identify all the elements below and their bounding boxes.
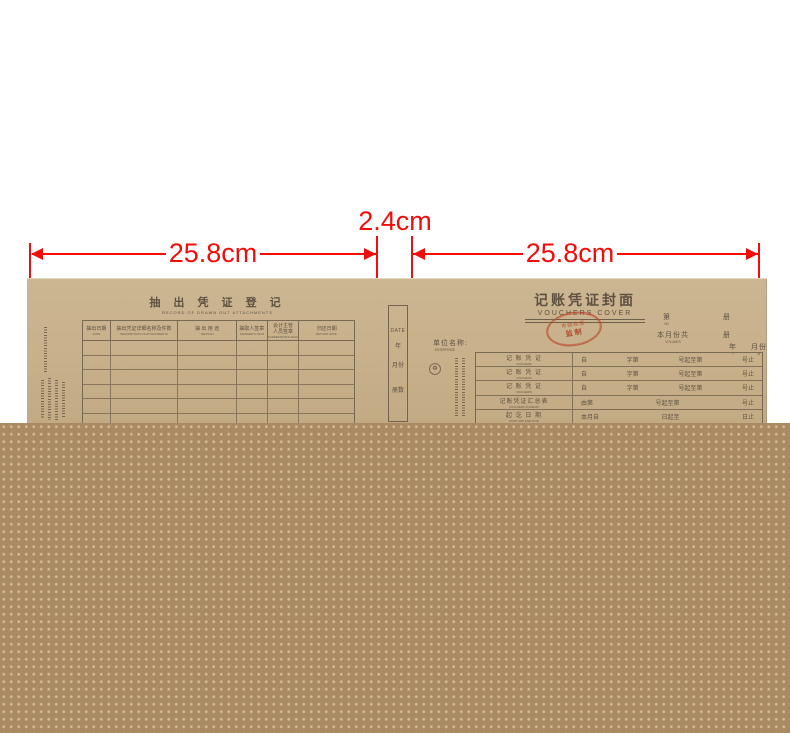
cell: 号起至第 bbox=[678, 369, 702, 378]
arrow-left-icon bbox=[31, 248, 43, 260]
table-row bbox=[83, 370, 354, 385]
row-label-cn: 记 账 凭 证 bbox=[506, 367, 542, 376]
row-label-en: START AND END DATE bbox=[509, 419, 539, 422]
table-row bbox=[83, 414, 354, 424]
col-header-reason: 抽 出 用 途 REASON bbox=[178, 321, 237, 340]
label-en: ENTERPRISE bbox=[435, 348, 466, 352]
book-no-label: 第 NO. bbox=[663, 312, 671, 326]
row-label-cn: 记 账 凭 证 bbox=[506, 381, 542, 390]
table-row-voucher-2: 记 账 凭 证VOUCHERS 自字第号起至第号止 bbox=[476, 367, 762, 381]
cell: 号起至第 bbox=[655, 398, 679, 407]
cell: 号止 bbox=[742, 355, 754, 364]
book-unit-label: 册 bbox=[723, 312, 731, 322]
table-row-dates: 起 讫 日 期START AND END DATE 本月自日起至日止 bbox=[476, 410, 762, 423]
row-label-cn: 记 账 凭 证 bbox=[506, 353, 542, 362]
spine-date-box: DATE 年 月份 册数 bbox=[388, 305, 408, 422]
dimension-label-left: 25.8cm bbox=[166, 238, 260, 268]
row-label-cn: 起 讫 日 期 bbox=[506, 410, 542, 419]
table-row bbox=[83, 341, 354, 356]
cell: 自 bbox=[581, 383, 587, 392]
label-cn: 月份 bbox=[751, 342, 767, 352]
left-title-cn: 抽 出 凭 证 登 记 bbox=[135, 294, 300, 310]
table-row bbox=[83, 356, 354, 371]
spine-volume-label: 册数 bbox=[389, 388, 407, 395]
blurred-kraft-foreground bbox=[0, 423, 790, 733]
cell: 日起至 bbox=[661, 412, 679, 421]
col-header-cn: 归还日期 bbox=[317, 326, 337, 332]
col-header-date: 抽出日期 DATE bbox=[83, 321, 111, 340]
table-row-summary: 记账凭证汇总表VOUCHERS SUMMARY 由第号起至第号止 bbox=[476, 396, 762, 410]
left-page-title: 抽 出 凭 证 登 记 RECORD OF DRAWN OUT ATTACHME… bbox=[135, 294, 300, 315]
row-label-en: VOUCHERS bbox=[516, 377, 532, 380]
month-total-unit-label: 册 bbox=[723, 330, 731, 340]
col-header-en: RETURN DATE bbox=[316, 332, 337, 335]
label-en: VOLUMES bbox=[659, 340, 688, 344]
cell: 号起至第 bbox=[678, 355, 702, 364]
left-title-en: RECORD OF DRAWN OUT ATTACHMENTS bbox=[135, 310, 300, 315]
dimension-tick bbox=[376, 236, 378, 278]
cell: 号止 bbox=[742, 398, 754, 407]
table-header-row: 抽出日期 DATE 抽出凭证详细名称及件数 DESCRIPTION OF ATT… bbox=[83, 321, 354, 341]
publisher-microtext bbox=[55, 380, 58, 420]
cell: 日止 bbox=[742, 412, 754, 421]
label-cn: 第 bbox=[663, 312, 671, 322]
cell: 号起至第 bbox=[678, 383, 702, 392]
publisher-microtext bbox=[62, 382, 65, 418]
row-label-cn: 记账凭证汇总表 bbox=[499, 396, 548, 405]
stamp-center-text: 监制 bbox=[565, 326, 584, 339]
col-header-en: REASON bbox=[201, 332, 214, 335]
month-total-label: 本月份共 VOLUMES bbox=[657, 330, 689, 344]
side-note-microtext bbox=[462, 358, 465, 418]
col-header-description: 抽出凭证详细名称及件数 DESCRIPTION OF ATTACHMENTS bbox=[111, 321, 179, 340]
recycle-mark-icon: ♻ bbox=[429, 363, 441, 375]
col-header-en: SUPERVISOR'S SIGN bbox=[268, 335, 298, 338]
product-photo-voucher-cover: 25.8cm 2.4cm 25.8cm 抽 出 凭 证 登 记 RECORD O… bbox=[0, 0, 790, 733]
cell: 字第 bbox=[627, 369, 639, 378]
col-header-supervisor-sign: 会计主管 人员签章 SUPERVISOR'S SIGN bbox=[268, 321, 300, 340]
dimension-label-spine: 2.4cm bbox=[348, 206, 442, 236]
cell: 自 bbox=[581, 355, 587, 364]
label-cn: 年 bbox=[729, 342, 737, 352]
table-row bbox=[83, 399, 354, 414]
cell: 号止 bbox=[742, 383, 754, 392]
enterprise-label: 单位名称: ENTERPRISE bbox=[433, 338, 468, 352]
arrow-right-icon bbox=[746, 248, 758, 260]
arrow-left-icon bbox=[413, 248, 425, 260]
label-cn: 本月份共 bbox=[657, 330, 689, 340]
cell: 字第 bbox=[627, 355, 639, 364]
row-label-en: VOUCHERS SUMMARY bbox=[509, 405, 540, 408]
table-row-voucher-1: 记 账 凭 证VOUCHERS 自字第号起至第号止 bbox=[476, 353, 762, 367]
col-header-cn: 抽出日期 bbox=[86, 326, 106, 332]
label-en: NO. bbox=[663, 322, 670, 326]
barcode-icon bbox=[49, 325, 64, 375]
cell: 自 bbox=[581, 369, 587, 378]
voucher-index-table: 记 账 凭 证VOUCHERS 自字第号起至第号止 记 账 凭 证VOUCHER… bbox=[475, 352, 763, 423]
spine-month-label: 月份 bbox=[389, 363, 407, 370]
cell: 本月自 bbox=[581, 412, 599, 421]
publisher-microtext bbox=[48, 378, 51, 420]
barcode-number-microtext bbox=[44, 327, 47, 373]
col-header-cn: 抽取人签章 bbox=[239, 326, 264, 332]
table-row-voucher-3: 记 账 凭 证VOUCHERS 自字第号起至第号止 bbox=[476, 381, 762, 395]
right-title-cn: 记账凭证封面 bbox=[505, 290, 665, 310]
label-cn: 册 bbox=[723, 312, 731, 322]
col-header-cn: 会计主管 人员签章 bbox=[273, 323, 293, 335]
arrow-right-icon bbox=[364, 248, 376, 260]
spine-date-label: DATE bbox=[389, 328, 407, 334]
row-label-en: VOUCHERS bbox=[516, 391, 532, 394]
label-cn: 册 bbox=[723, 330, 731, 340]
label-cn: 单位名称: bbox=[433, 338, 468, 348]
col-header-return-date: 归还日期 RETURN DATE bbox=[299, 321, 354, 340]
kraft-voucher-cover-paper: 抽 出 凭 证 登 记 RECORD OF DRAWN OUT ATTACHME… bbox=[27, 278, 767, 423]
dimension-tick bbox=[758, 243, 760, 278]
col-header-en: DESCRIPTION OF ATTACHMENTS bbox=[120, 332, 168, 335]
drawn-out-register-table: 抽出日期 DATE 抽出凭证详细名称及件数 DESCRIPTION OF ATT… bbox=[82, 320, 355, 423]
cell: 由第 bbox=[581, 398, 593, 407]
cell: 号止 bbox=[742, 369, 754, 378]
col-header-en: DRAWER'S SIGN bbox=[240, 332, 264, 335]
table-row bbox=[83, 385, 354, 400]
col-header-en: DATE bbox=[93, 332, 101, 335]
row-label-en: VOUCHERS bbox=[516, 362, 532, 365]
publisher-microtext bbox=[41, 380, 44, 418]
col-header-drawer-sign: 抽取人签章 DRAWER'S SIGN bbox=[237, 321, 268, 340]
col-header-cn: 抽 出 用 途 bbox=[195, 326, 219, 332]
side-note-microtext bbox=[455, 358, 458, 416]
dimension-label-right: 25.8cm bbox=[523, 238, 617, 268]
cell: 字第 bbox=[627, 383, 639, 392]
spine-year-label: 年 bbox=[389, 344, 407, 351]
col-header-cn: 抽出凭证详细名称及件数 bbox=[117, 326, 172, 332]
